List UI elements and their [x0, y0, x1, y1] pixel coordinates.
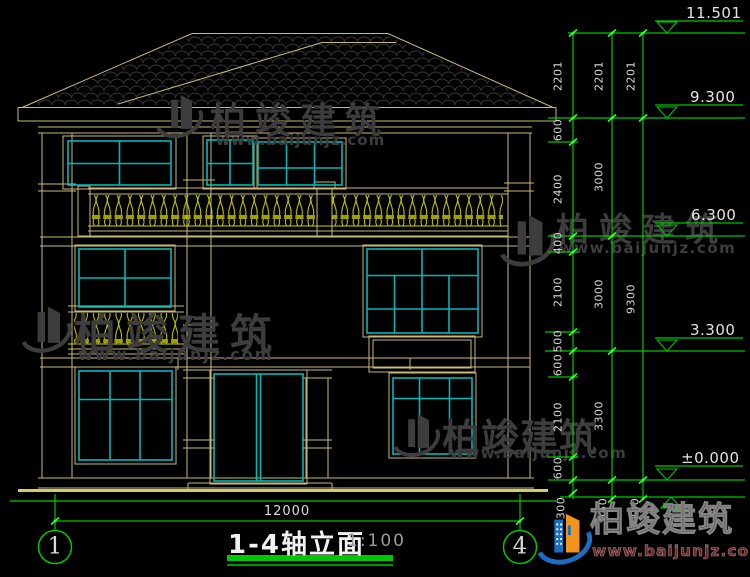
dim-label: 400 — [552, 232, 565, 255]
dim-label: 3000 — [593, 279, 606, 309]
dim-label: 2400 — [552, 174, 565, 204]
elevation-label: 9.300 — [690, 88, 735, 106]
dim-label: 3000 — [593, 162, 606, 192]
dim-label: 600 — [552, 119, 565, 142]
dim-label: 2100 — [552, 402, 565, 432]
grid-number-4: 4 — [513, 533, 528, 559]
dim-label: 2201 — [552, 61, 565, 91]
footer-brand: 柏竣建筑 — [590, 503, 734, 537]
overall-width-dimension: 12000 — [264, 504, 310, 519]
dim-label: 600 — [552, 354, 565, 377]
dim-label: 600 — [552, 457, 565, 480]
grid-number-1: 1 — [48, 533, 63, 559]
dim-label: 500 — [552, 330, 565, 353]
elevation-marker-symbols — [657, 22, 681, 508]
drawing-scale: 1:100 — [347, 531, 406, 551]
footer-url: www.baijunjz.com — [592, 544, 750, 560]
cad-elevation-screenshot: 柏竣建筑 www.baijunjz.com 柏竣建筑 www.baijunjz.… — [0, 0, 750, 577]
drawing-title: 1-4轴立面 — [228, 524, 365, 561]
dim-label: 2201 — [625, 61, 638, 91]
dim-label: 3300 — [593, 401, 606, 431]
elevation-label: 3.300 — [690, 321, 735, 339]
dim-label: 2100 — [552, 277, 565, 307]
dim-label: 9300 — [625, 284, 638, 314]
elevation-label: 11.501 — [686, 4, 742, 22]
dimension-chains — [10, 21, 745, 531]
company-logo-icon — [535, 504, 593, 572]
elevation-label: ±0.000 — [681, 449, 740, 467]
dim-label: 2201 — [593, 61, 606, 91]
elevation-label: 6.300 — [691, 206, 736, 224]
dimension-linework — [0, 0, 750, 577]
